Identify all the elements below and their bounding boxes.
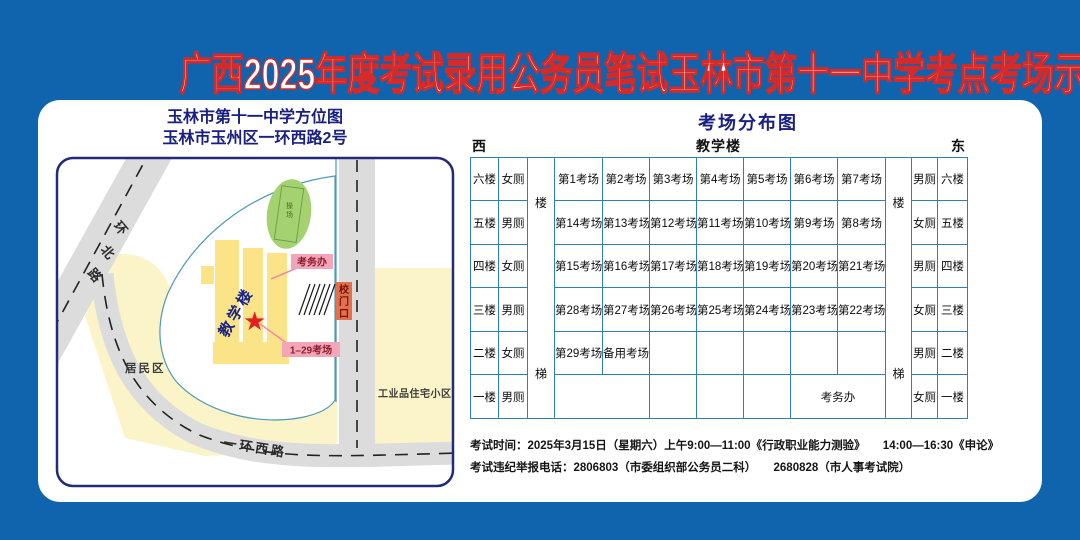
toilet-label: 女厕 (912, 375, 938, 419)
building-base (213, 342, 289, 364)
gate-label-char3: 口 (339, 309, 349, 320)
stairs-left: 楼 梯 (528, 158, 555, 419)
gate-label-char1: 校 (339, 283, 350, 296)
direction-west: 西 (472, 136, 486, 156)
stairs-right: 楼 梯 (886, 158, 912, 419)
gate-label-char2: 门 (339, 295, 349, 308)
exam-room-cell: 第15考场 (555, 244, 603, 287)
floor-label: 四楼 (938, 244, 968, 287)
exam-room-cell: 第29考场 (555, 331, 603, 374)
exam-room-cell: 第10考场 (744, 201, 791, 244)
content-panel: 玉林市第十一中学方位图 玉林市玉州区一环西路2号 (38, 100, 1042, 502)
stairs-char-bottom: 梯 (892, 365, 904, 382)
empty-cell (555, 375, 650, 419)
exam-room-cell: 第14考场 (555, 201, 603, 244)
exam-room-cell (650, 331, 697, 374)
exam-time-line: 考试时间：2025年3月15日（星期六）上午9:00—11:00《行政职业能力测… (470, 435, 1042, 457)
exam-room-cell (744, 331, 791, 374)
exam-site-star: ★ (243, 306, 266, 336)
exam-room-cell: 第3考场 (650, 158, 697, 201)
playground-label-char1: 操 (286, 201, 293, 210)
toilet-label: 男厕 (499, 201, 528, 244)
exam-office-cell: 考务办 (791, 375, 886, 419)
poster: 广西2025年度考试录用公务员笔试玉林市第十一中学考点考场示意图 玉林市第十一中… (0, 0, 1080, 540)
exam-room-cell: 第16考场 (603, 244, 650, 287)
exam-room-cell: 第27考场 (603, 288, 650, 331)
floor-label: 二楼 (471, 331, 499, 374)
toilet-label: 女厕 (499, 331, 528, 374)
exam-room-cell (838, 331, 886, 374)
industrial-label: 工业品住宅小区 (378, 387, 452, 400)
building-slab-3 (267, 253, 287, 353)
empty-cell (650, 375, 697, 419)
floor-label: 三楼 (471, 288, 499, 331)
toilet-label: 女厕 (499, 244, 528, 287)
building-header: 教学楼 (696, 136, 741, 156)
exam-room-cell: 第12考场 (650, 201, 697, 244)
page-title-text: 广西2025年度考试录用公务员笔试玉林市第十一中学考点考场示意图 (180, 38, 1080, 102)
exam-room-cell: 第22考场 (838, 288, 886, 331)
exam-room-cell: 第18考场 (697, 244, 744, 287)
exam-room-cell (791, 331, 838, 374)
exam-room-cell: 第25考场 (697, 288, 744, 331)
rooms-range-label: 1–29考场 (290, 344, 332, 357)
map-title: 玉林市第十一中学方位图 玉林市玉州区一环西路2号 (55, 107, 455, 149)
exam-room-cell: 第21考场 (838, 244, 886, 287)
exam-room-cell: 第2考场 (603, 158, 650, 201)
floor-label: 一楼 (938, 375, 968, 419)
toilet-label: 男厕 (912, 244, 938, 287)
stairs-char-top: 楼 (535, 194, 547, 211)
residential-label: 居民区 (125, 362, 166, 375)
exam-room-cell: 第23考场 (791, 288, 838, 331)
exam-room-cell: 第20考场 (791, 244, 838, 287)
rooms-table: 六楼 女厕 楼 梯 第1考场 第2考场 第3考场 第4考场 第5考场 第6考场 … (470, 157, 968, 419)
exam-room-cell: 第11考场 (697, 201, 744, 244)
exam-room-cell: 第19考场 (744, 244, 791, 287)
toilet-label: 男厕 (912, 331, 938, 374)
exam-room-cell: 第4考场 (697, 158, 744, 201)
page-title: 广西2025年度考试录用公务员笔试玉林市第十一中学考点考场示意图 (0, 38, 1080, 102)
floor-label: 六楼 (471, 158, 499, 201)
exam-room-cell: 第17考场 (650, 244, 697, 287)
toilet-label: 女厕 (912, 288, 938, 331)
exam-room-cell: 第6考场 (791, 158, 838, 201)
exam-room-cell: 第8考场 (838, 201, 886, 244)
exam-room-cell: 第5考场 (744, 158, 791, 201)
empty-cell (697, 375, 744, 419)
location-map: 操 场 教学楼 考务办 (55, 156, 455, 488)
table-row: 六楼 女厕 楼 梯 第1考场 第2考场 第3考场 第4考场 第5考场 第6考场 … (471, 158, 968, 201)
exam-room-cell: 第26考场 (650, 288, 697, 331)
direction-header: 西 教学楼 东 (470, 136, 967, 156)
map-title-line1: 玉林市第十一中学方位图 (55, 107, 455, 128)
floor-label: 五楼 (938, 201, 968, 244)
floor-label: 三楼 (938, 288, 968, 331)
playground-label-char2: 场 (286, 210, 293, 219)
toilet-label: 男厕 (499, 375, 528, 419)
footer-notes: 考试时间：2025年3月15日（星期六）上午9:00—11:00《行政职业能力测… (470, 435, 1042, 479)
stairs-char-top: 楼 (892, 194, 904, 211)
empty-cell (744, 375, 791, 419)
direction-east: 东 (951, 136, 965, 156)
distribution-title: 考场分布图 (470, 109, 1026, 135)
map-title-line2: 玉林市玉州区一环西路2号 (55, 128, 455, 149)
toilet-label: 男厕 (912, 158, 938, 201)
exam-room-cell: 第28考场 (555, 288, 603, 331)
exam-office-label: 考务办 (297, 256, 327, 269)
industrial-area (373, 268, 455, 450)
exam-room-cell: 第1考场 (555, 158, 603, 201)
toilet-label: 女厕 (499, 158, 528, 201)
floor-label: 四楼 (471, 244, 499, 287)
toilet-label: 男厕 (499, 288, 528, 331)
building-wing (201, 266, 214, 284)
exam-room-cell: 第13考场 (603, 201, 650, 244)
exam-room-cell: 第9考场 (791, 201, 838, 244)
exam-room-cell: 备用考场 (603, 331, 650, 374)
floor-label: 六楼 (938, 158, 968, 201)
floor-label: 一楼 (471, 375, 499, 419)
floor-label: 五楼 (471, 201, 499, 244)
floor-label: 二楼 (938, 331, 968, 374)
toilet-label: 女厕 (912, 201, 938, 244)
exam-room-cell: 第7考场 (838, 158, 886, 201)
stairs-char-bottom: 梯 (535, 365, 547, 382)
exam-room-cell (697, 331, 744, 374)
report-phone-line: 考试违纪举报电话：2806803（市委组织部公务员二科） 2680828（市人事… (470, 457, 1042, 479)
exam-room-cell: 第24考场 (744, 288, 791, 331)
